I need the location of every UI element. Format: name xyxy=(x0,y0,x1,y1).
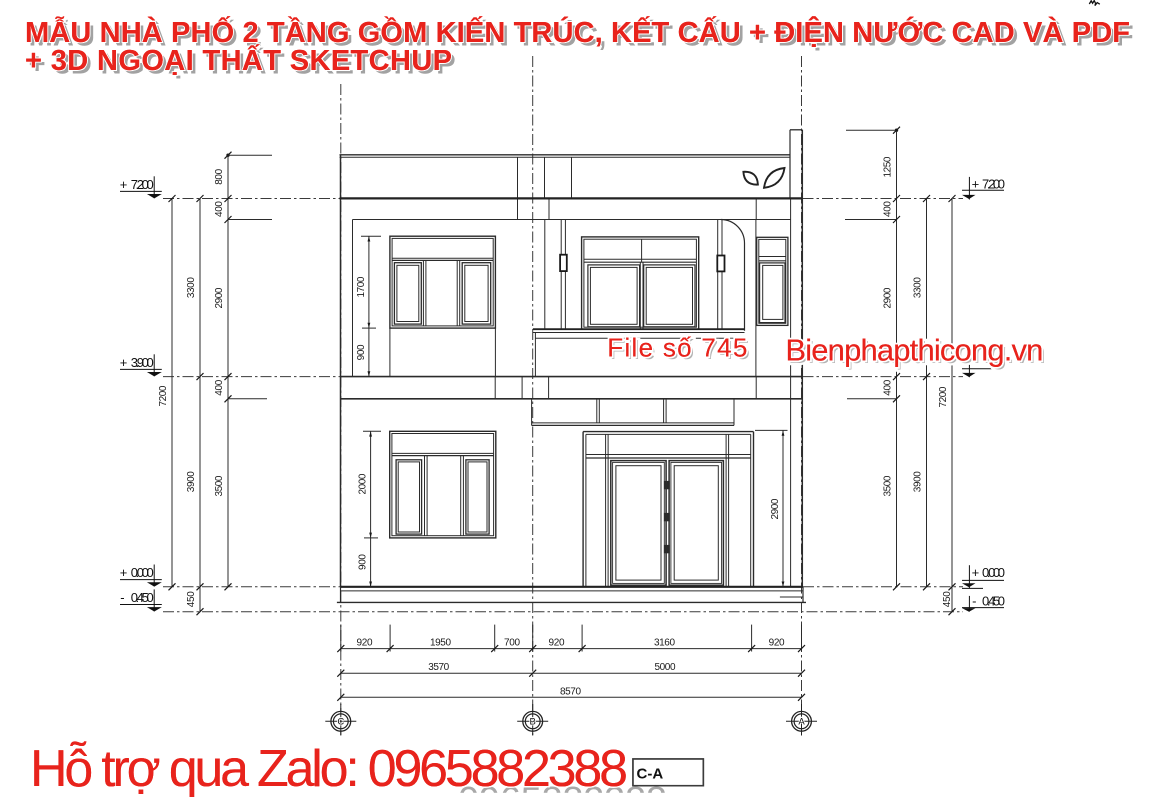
svg-text:7200: 7200 xyxy=(938,386,949,407)
svg-text:-: - xyxy=(972,593,976,608)
svg-text:5000: 5000 xyxy=(655,662,676,673)
svg-text:1950: 1950 xyxy=(430,638,451,649)
svg-text:2900: 2900 xyxy=(214,287,225,308)
svg-text:900: 900 xyxy=(356,344,367,360)
svg-text:2900: 2900 xyxy=(770,498,781,519)
svg-text:MẪU NHÀ PHỐ 2 TẦNG GỒM KIẾN TR: MẪU NHÀ PHỐ 2 TẦNG GỒM KIẾN TRÚC, KẾT CẤ… xyxy=(25,15,1130,49)
svg-text:+: + xyxy=(120,177,128,192)
svg-text:B: B xyxy=(530,717,536,728)
svg-text:400: 400 xyxy=(883,379,894,395)
svg-text:3900: 3900 xyxy=(913,471,924,492)
svg-text:7.200: 7.200 xyxy=(131,177,154,192)
svg-text:0.000: 0.000 xyxy=(982,565,1005,580)
svg-text:1700: 1700 xyxy=(356,276,367,297)
svg-text:700: 700 xyxy=(504,638,520,649)
svg-text:C-A: C-A xyxy=(637,765,664,782)
svg-text:3300: 3300 xyxy=(913,277,924,298)
svg-text:900: 900 xyxy=(357,554,368,570)
svg-text:920: 920 xyxy=(769,638,785,649)
svg-text:+: + xyxy=(120,565,128,580)
svg-text:7200: 7200 xyxy=(158,385,169,406)
svg-text:C: C xyxy=(337,717,344,728)
svg-text:400: 400 xyxy=(883,201,894,217)
svg-text:A: A xyxy=(798,717,805,728)
svg-text:400: 400 xyxy=(214,379,225,395)
svg-text:2000: 2000 xyxy=(357,473,368,494)
svg-text:3500: 3500 xyxy=(214,475,225,496)
svg-text:800: 800 xyxy=(214,168,225,184)
svg-text:Hỗ trợ qua Zalo: 0965882388: Hỗ trợ qua Zalo: 0965882388 xyxy=(30,740,628,798)
svg-text:450: 450 xyxy=(942,591,953,607)
svg-text:3.900: 3.900 xyxy=(131,355,154,370)
svg-text:+ 3D NGOẠI THẤT SKETCHUP: + 3D NGOẠI THẤT SKETCHUP xyxy=(25,43,452,77)
svg-text:0.450: 0.450 xyxy=(982,593,1005,608)
svg-text:File số 745: File số 745 xyxy=(607,333,747,363)
svg-text:920: 920 xyxy=(549,638,565,649)
svg-text:+: + xyxy=(972,177,980,192)
svg-text:3570: 3570 xyxy=(428,662,449,673)
svg-text:7.200: 7.200 xyxy=(982,177,1005,192)
svg-text:450: 450 xyxy=(186,591,197,607)
svg-text:0.000: 0.000 xyxy=(131,565,154,580)
svg-text:3300: 3300 xyxy=(186,277,197,298)
svg-text:+: + xyxy=(120,355,128,370)
svg-text:3500: 3500 xyxy=(883,475,894,496)
svg-text:920: 920 xyxy=(357,638,373,649)
svg-text:1250: 1250 xyxy=(883,156,894,177)
svg-text:Bienphapthicong.vn: Bienphapthicong.vn xyxy=(785,333,1043,368)
svg-text:2900: 2900 xyxy=(883,287,894,308)
svg-text:3160: 3160 xyxy=(654,638,675,649)
svg-text:0.450: 0.450 xyxy=(131,590,154,605)
svg-text:3900: 3900 xyxy=(186,471,197,492)
svg-text:-: - xyxy=(120,590,124,605)
svg-text:+: + xyxy=(972,565,980,580)
svg-text:8570: 8570 xyxy=(560,686,581,697)
svg-text:400: 400 xyxy=(214,201,225,217)
